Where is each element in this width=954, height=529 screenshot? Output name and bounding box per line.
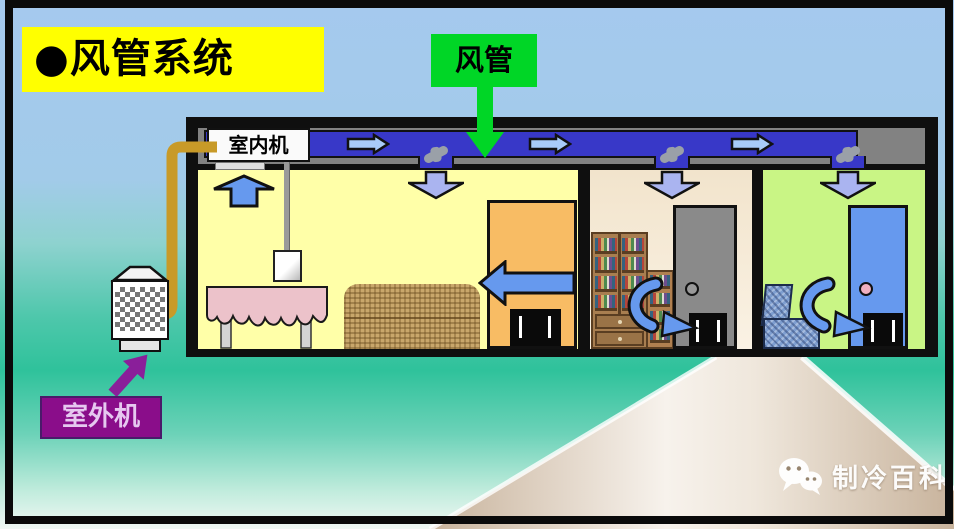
supply-air-arrow <box>820 170 876 200</box>
wechat-icon <box>778 456 824 496</box>
controller-cable <box>284 162 290 252</box>
outdoor-unit-grille <box>115 287 165 331</box>
outdoor-unit-label: 室外机 <box>40 396 162 439</box>
wired-controller <box>273 250 302 282</box>
duct-air-arrow <box>528 133 572 155</box>
return-air-curved-arrow <box>794 276 874 338</box>
duct-air-arrow <box>730 133 774 155</box>
watermark: 制冷百科 <box>778 456 948 496</box>
supply-air-arrow <box>408 170 464 200</box>
sofa <box>344 284 480 349</box>
duct-callout-arrow-head <box>466 132 504 158</box>
partition-wall <box>578 164 590 349</box>
page-title: ●风管系统 <box>22 27 324 92</box>
outdoor-unit-pointer-arrow <box>102 346 158 402</box>
duct-air-arrow <box>346 133 390 155</box>
supply-air-arrow <box>644 170 700 200</box>
duct-callout: 风管 <box>431 34 537 87</box>
outdoor-unit <box>111 280 169 340</box>
return-air-arrow-left <box>478 260 576 306</box>
duct-callout-arrow <box>477 86 493 136</box>
watermark-text: 制冷百科 <box>832 458 948 495</box>
ceiling-line <box>198 164 925 170</box>
return-air-curved-arrow <box>622 276 702 338</box>
slide: 制冷百科 室内机 <box>0 0 954 529</box>
door-grille <box>510 309 561 346</box>
